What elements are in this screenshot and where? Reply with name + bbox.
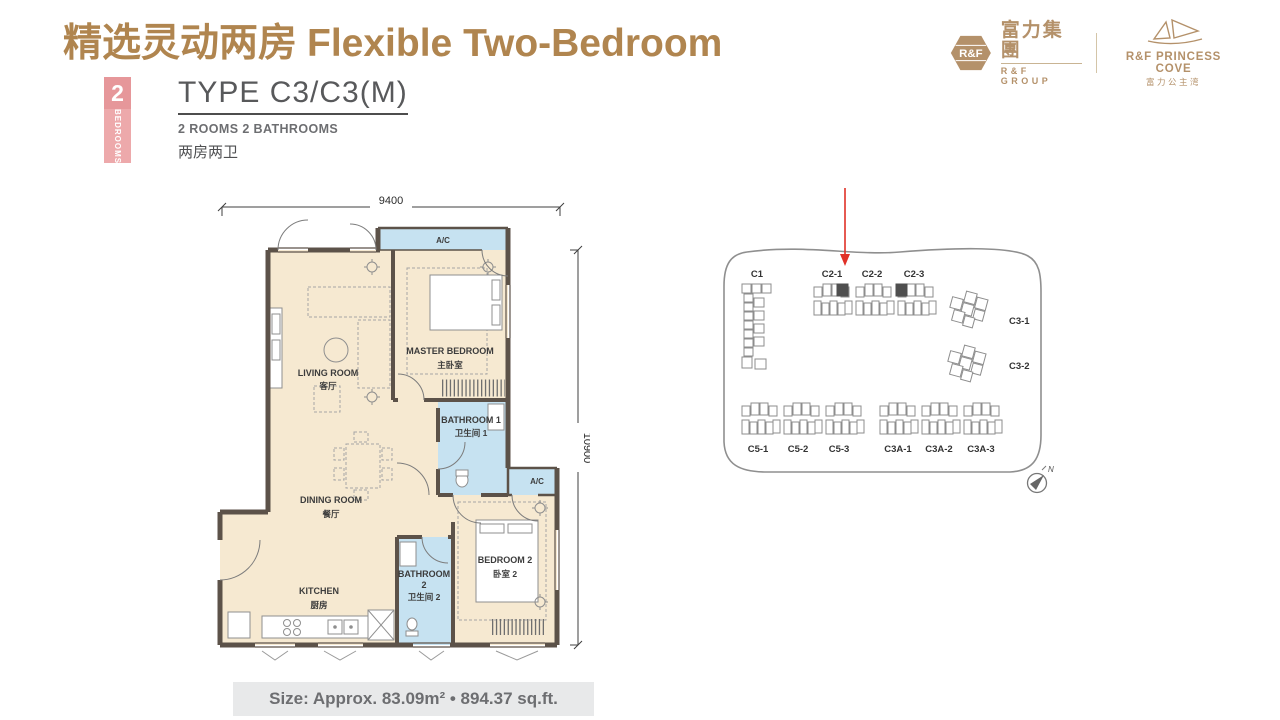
block-label-c3-2: C3-2 <box>1009 361 1030 372</box>
rf-group-name-en: R&F GROUP <box>1001 63 1082 86</box>
bedrooms-badge: 2 BEDROOMS <box>104 77 131 163</box>
logo-area: R&F 富力集團 R&F GROUP R&F PRINCESS COVE 富力公… <box>948 24 1238 82</box>
bedrooms-label: BEDROOMS <box>104 109 131 163</box>
block-label-c2-1: C2-1 <box>822 269 843 280</box>
rf-hexagon-icon: R&F <box>948 28 994 78</box>
size-bar: Size: Approx. 83.09m² • 894.37 sq.ft. <box>233 682 594 716</box>
ship-icon <box>1142 19 1206 45</box>
block-label-c2-3: C2-3 <box>904 269 925 280</box>
type-block: TYPE C3/C3(M) 2 ROOMS 2 BATHROOMS 两房两卫 <box>178 76 408 162</box>
ac-label-right: A/C <box>530 477 544 486</box>
room-label-living: LIVING ROOM <box>298 368 359 378</box>
rooms-line-zh: 两房两卫 <box>178 141 408 162</box>
princess-cove-logo: R&F PRINCESS COVE 富力公主湾 <box>1109 19 1238 88</box>
dimension-height-label: 10900 <box>581 433 590 464</box>
page-title: 精选灵动两房Flexible Two-Bedroom <box>63 12 722 68</box>
room-label-bath2-zh: 卫生间 2 <box>408 592 441 602</box>
bedrooms-count: 2 <box>104 77 131 109</box>
block-label-c2-2: C2-2 <box>862 269 883 280</box>
room-label-dining-zh: 餐厅 <box>321 509 340 519</box>
compass-icon: N <box>1028 465 1055 493</box>
ac-label-top: A/C <box>436 236 450 245</box>
highlighted-unit-2 <box>896 284 907 296</box>
block-label-c3-1: C3-1 <box>1009 316 1030 327</box>
logo-divider <box>1096 33 1097 73</box>
rf-group-logo: R&F 富力集團 R&F GROUP <box>948 21 1082 86</box>
block-label-c3a-2: C3A-2 <box>925 444 952 455</box>
compass-north-label: N <box>1048 465 1054 474</box>
block-label-c3a-3: C3A-3 <box>967 444 994 455</box>
room-label-bed2: BEDROOM 2 <box>478 555 533 565</box>
floorplan-drawing: 9400 10900 LIVING ROOM 客厅 MASTER BEDROOM… <box>200 190 590 670</box>
highlighted-unit-1 <box>837 284 848 296</box>
brochure-page: 精选灵动两房Flexible Two-Bedroom R&F 富力集團 R&F … <box>0 0 1280 720</box>
block-label-c5-1: C5-1 <box>748 444 769 455</box>
room-label-kitchen-zh: 厨房 <box>310 600 327 610</box>
room-label-master: MASTER BEDROOM <box>406 346 494 356</box>
location-arrow <box>840 188 850 266</box>
block-label-c5-2: C5-2 <box>788 444 809 455</box>
room-label-living-zh: 客厅 <box>318 381 337 391</box>
type-heading: TYPE C3/C3(M) <box>178 76 408 115</box>
room-label-bath2: BATHROOM <box>398 569 450 579</box>
princess-cove-name-zh: 富力公主湾 <box>1109 76 1238 88</box>
princess-cove-name-en: R&F PRINCESS COVE <box>1109 51 1238 75</box>
room-label-bath1-zh: 卫生间 1 <box>455 428 488 438</box>
siteplan-drawing: C1 C2-1 C2-2 C2-3 C3-1 C3-2 C5-1 C5-2 C5… <box>715 180 1060 510</box>
rooms-line-en: 2 ROOMS 2 BATHROOMS <box>178 122 408 136</box>
rf-group-name-zh: 富力集團 <box>1001 21 1082 61</box>
room-label-kitchen: KITCHEN <box>299 586 339 596</box>
dimension-width-label: 9400 <box>379 195 403 207</box>
rf-abbr: R&F <box>959 48 982 60</box>
room-label-dining: DINING ROOM <box>300 495 362 505</box>
room-label-bed2-zh: 卧室 2 <box>493 569 517 579</box>
block-label-c1: C1 <box>751 269 764 280</box>
block-label-c5-3: C5-3 <box>829 444 850 455</box>
room-label-master-zh: 主卧室 <box>437 360 463 370</box>
page-title-en: Flexible Two-Bedroom <box>307 22 722 65</box>
page-title-zh: 精选灵动两房 <box>63 22 297 65</box>
block-label-c3a-1: C3A-1 <box>884 444 912 455</box>
site-boundary <box>724 249 1041 472</box>
room-label-bath2-num: 2 <box>421 580 426 590</box>
room-label-bath1: BATHROOM 1 <box>441 415 501 425</box>
window-hatches <box>262 651 538 660</box>
